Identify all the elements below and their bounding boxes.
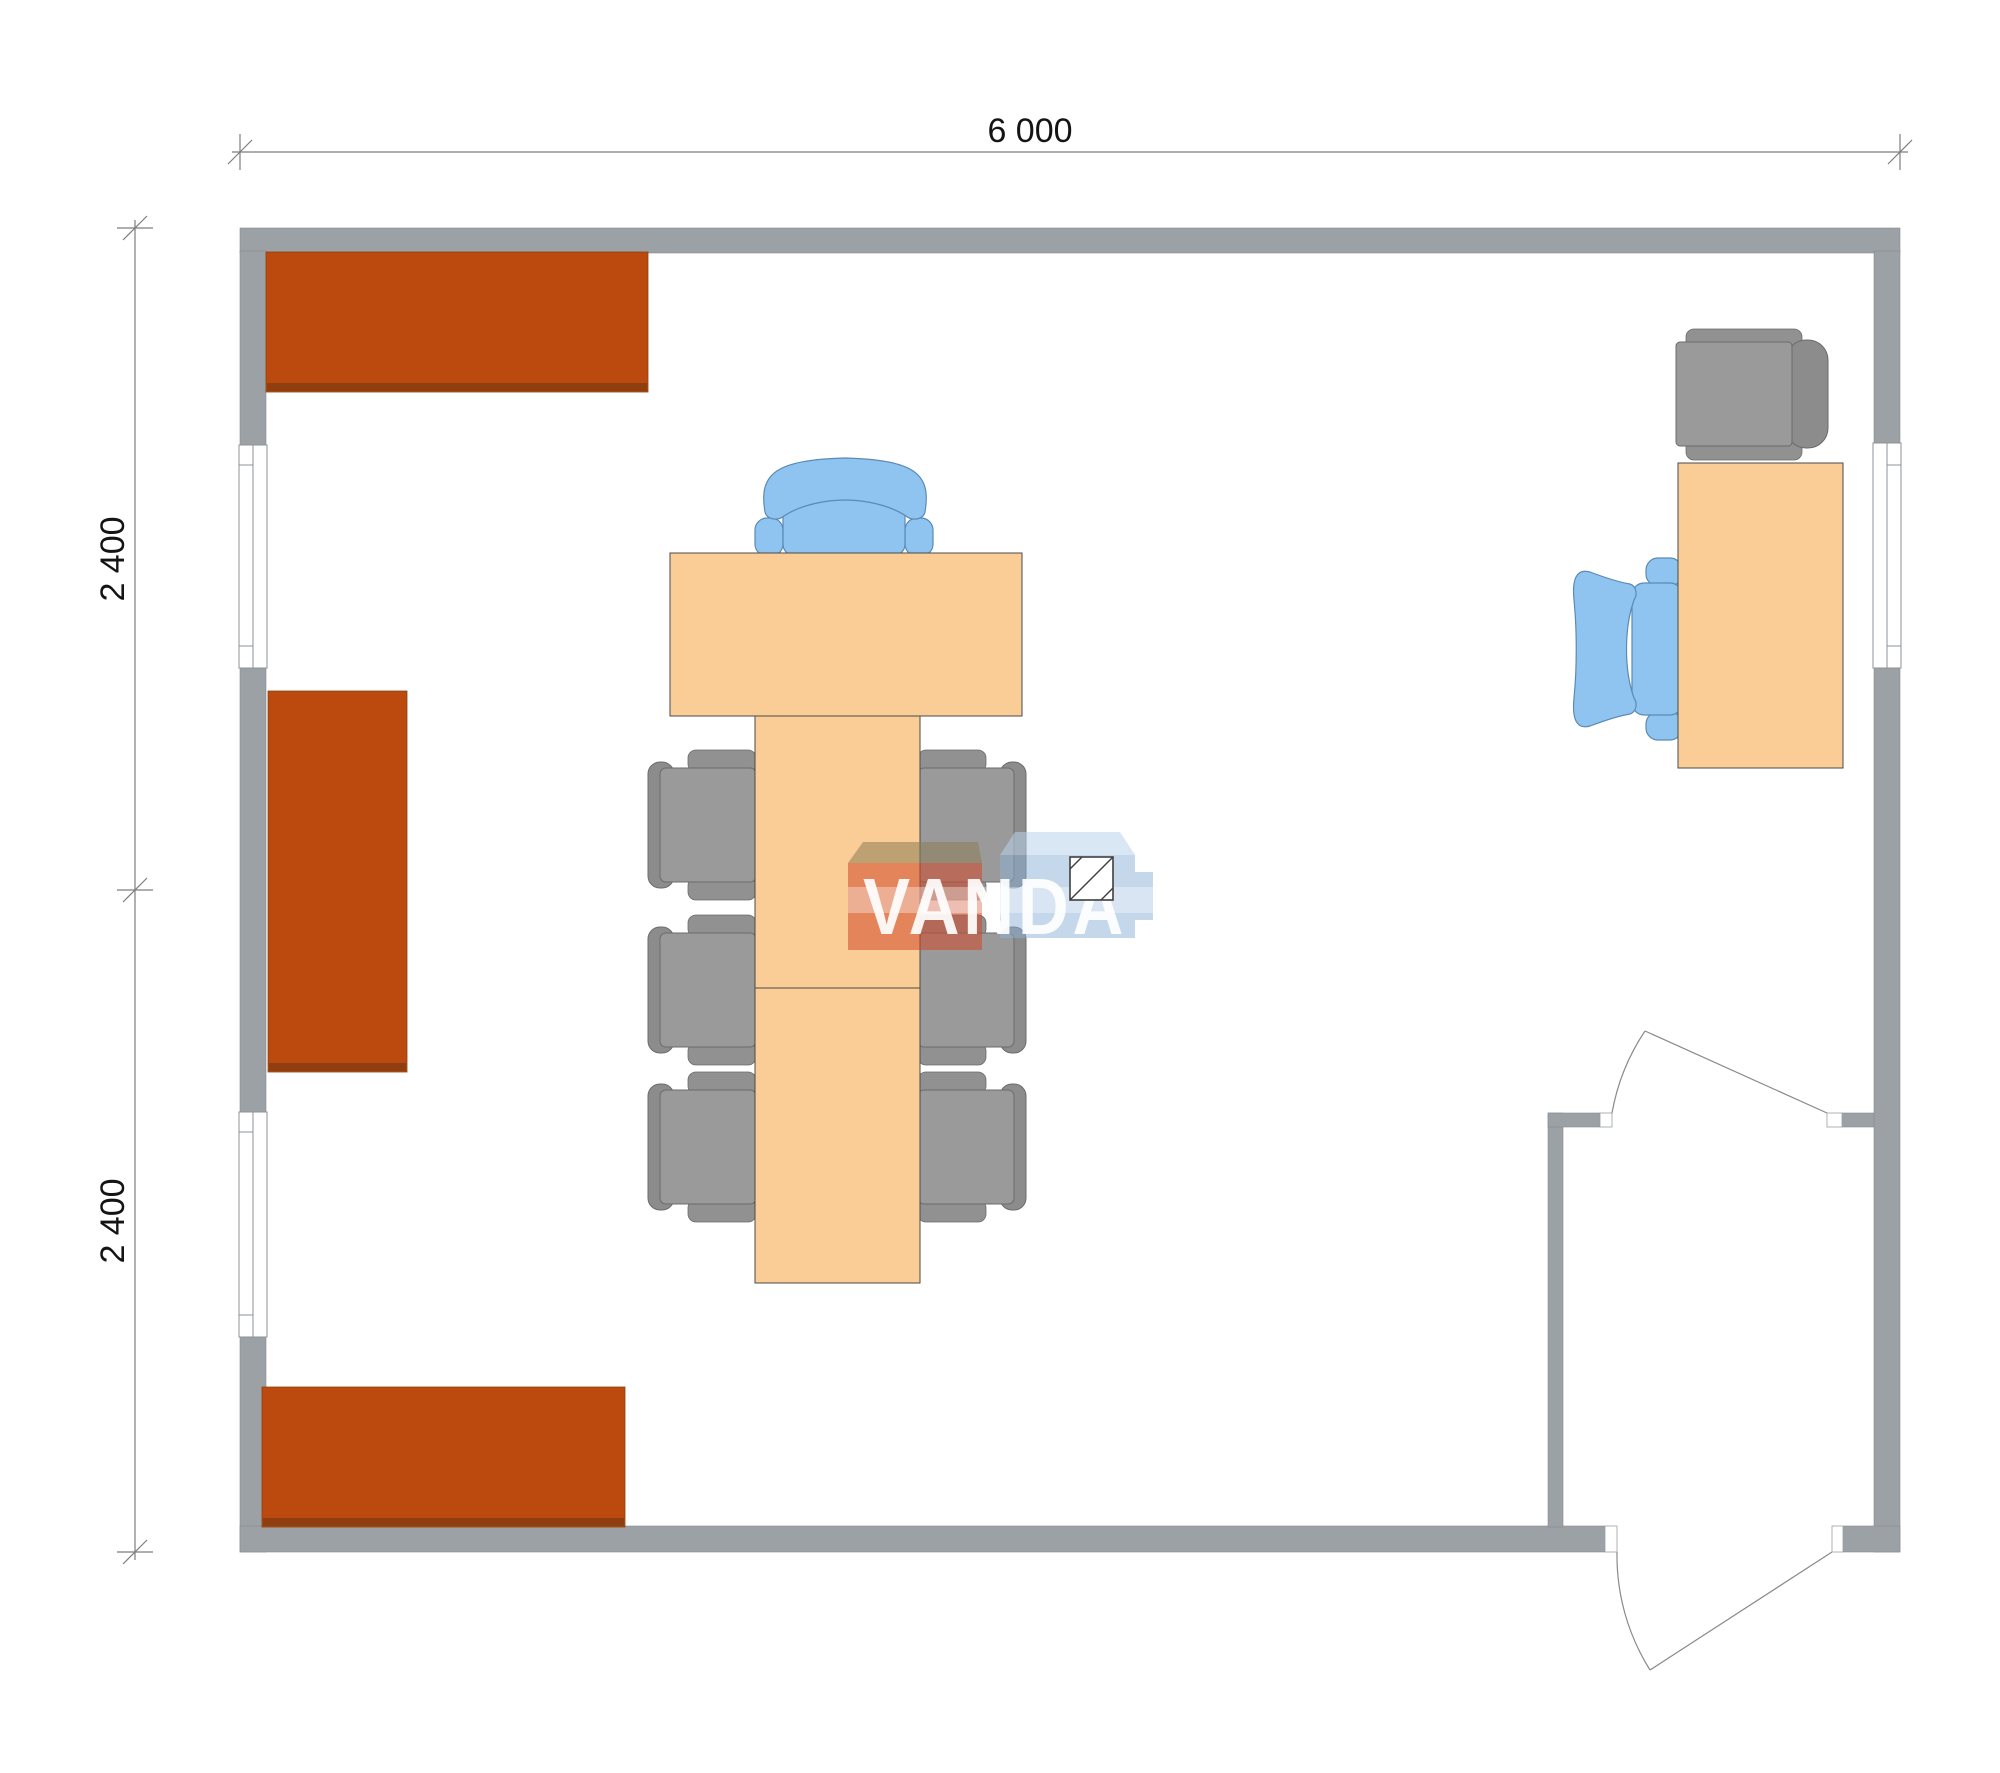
left-upper-dimension-label: 2 400 [94, 516, 132, 601]
side-chair-left-2 [648, 915, 756, 1065]
window-left-upper [239, 445, 267, 668]
entrance-door-outer [1617, 1552, 1832, 1670]
vestibule-wall-left [1548, 1113, 1563, 1527]
desk-chair-armrest-bottom [1646, 712, 1682, 740]
wall-shelf-top-left [266, 252, 648, 392]
wall-cabinet-middle-left [268, 691, 407, 1072]
inner-door-jamb-right [1827, 1113, 1842, 1127]
wall-top [240, 228, 1900, 253]
executive-chair-armrest-right [905, 518, 933, 556]
inner-door-jamb-left [1600, 1113, 1612, 1127]
top-dimension: 6 000 [228, 112, 1912, 170]
armchair-gray [1676, 329, 1828, 460]
outer-door-jamb-left [1605, 1526, 1617, 1552]
entrance-door-inner [1612, 1031, 1827, 1113]
vestibule-wall-top-right [1842, 1113, 1874, 1127]
office-desk [1678, 463, 1843, 768]
meeting-table-head [670, 553, 1022, 716]
watermark-red-block-top [848, 842, 982, 863]
window-left-lower [239, 1112, 267, 1337]
ceiling-light-fixture-icon [1070, 857, 1113, 900]
desk-chair-armrest-top [1646, 558, 1682, 586]
floor-plan: 6 000 2 400 2 400 [0, 0, 2000, 1773]
vestibule-wall-top-left [1548, 1113, 1600, 1127]
watermark-blue-block-top [1000, 832, 1135, 855]
desk-chair-blue [1574, 558, 1682, 740]
window-right [1873, 443, 1901, 668]
meeting-table-long [755, 716, 920, 1283]
executive-chair-blue [755, 458, 933, 556]
wall-right-upper [1874, 251, 1900, 443]
wall-left-upper [240, 251, 266, 445]
wall-bottom-right [1843, 1526, 1900, 1552]
side-chair-left-3 [648, 1072, 756, 1222]
wall-bottom-left [240, 1526, 1605, 1552]
outer-door-jamb-right [1832, 1526, 1843, 1552]
top-dimension-label: 6 000 [987, 112, 1072, 150]
left-lower-dimension-label: 2 400 [94, 1178, 132, 1263]
left-dimension: 2 400 2 400 [94, 216, 153, 1564]
desk-chair-headrest [1574, 571, 1637, 727]
side-chair-right-3 [918, 1072, 1026, 1222]
wall-right-lower [1874, 668, 1900, 1552]
wall-shelf-bottom-left [262, 1387, 625, 1527]
wall-left-middle [240, 668, 266, 1112]
side-chair-left-1 [648, 750, 756, 900]
desk-chair-seat [1632, 583, 1682, 715]
executive-chair-armrest-left [755, 518, 783, 556]
